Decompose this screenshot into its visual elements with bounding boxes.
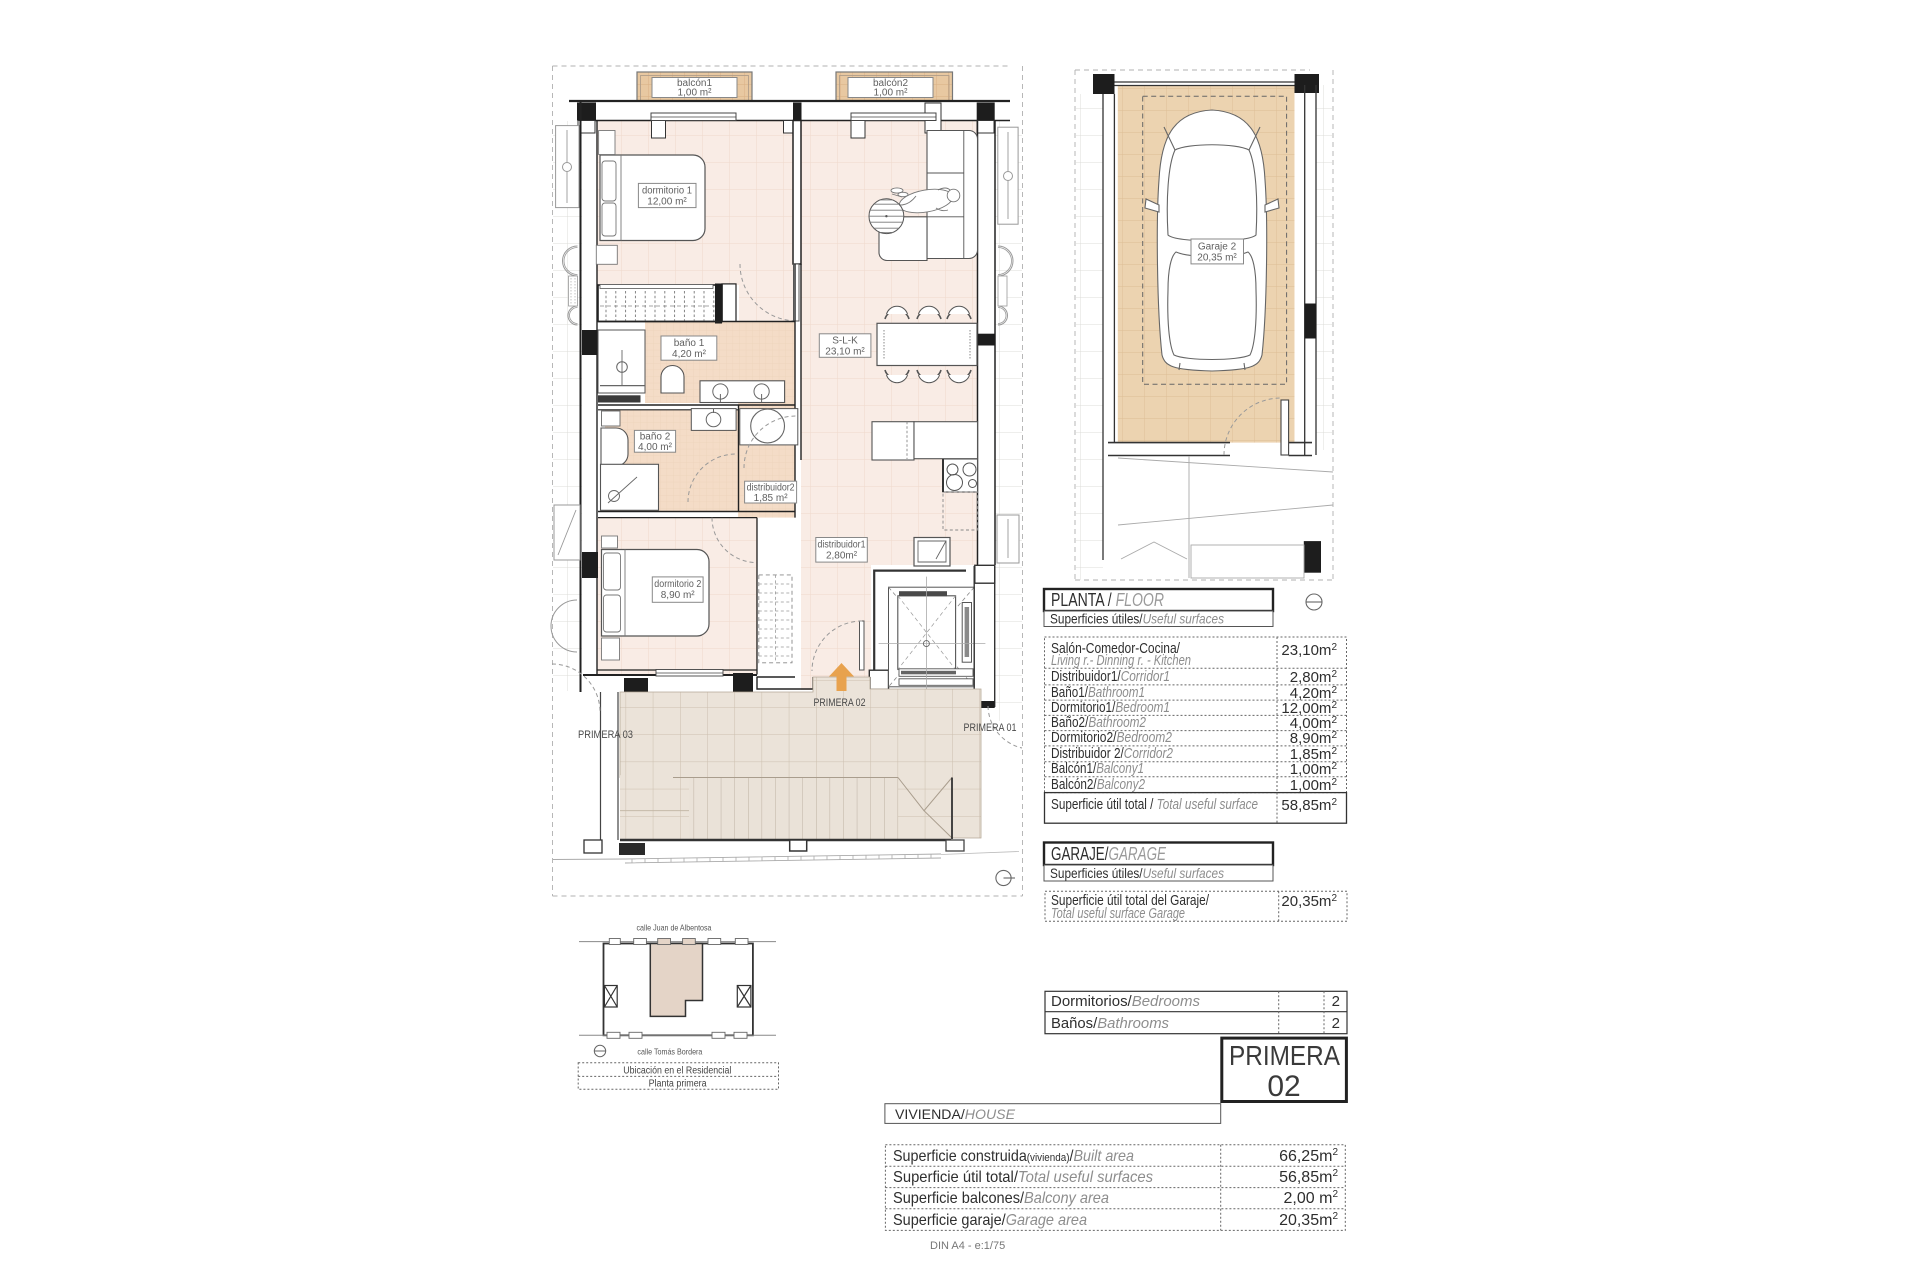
svg-text:Dormitorios/Bedrooms: Dormitorios/Bedrooms <box>1051 993 1200 1010</box>
svg-text:distribuidor2: distribuidor2 <box>747 483 795 494</box>
svg-text:PLANTA / FLOOR: PLANTA / FLOOR <box>1051 589 1164 610</box>
svg-text:Superficie útil total/Total us: Superficie útil total/Total useful surfa… <box>893 1169 1153 1186</box>
svg-text:Ubicación en el Residencial: Ubicación en el Residencial <box>623 1065 731 1076</box>
svg-text:Garaje 2: Garaje 2 <box>1198 242 1237 253</box>
svg-text:58,85m2: 58,85m2 <box>1281 797 1337 814</box>
svg-text:Distribuidor1/Corridor1: Distribuidor1/Corridor1 <box>1051 668 1170 685</box>
svg-text:calle Juan de Albentosa: calle Juan de Albentosa <box>637 923 712 933</box>
svg-text:66,25m2: 66,25m2 <box>1279 1147 1338 1165</box>
svg-text:1,00 m²: 1,00 m² <box>678 88 713 99</box>
svg-text:S-L-K: S-L-K <box>832 336 858 347</box>
svg-text:1,00m2: 1,00m2 <box>1290 777 1338 794</box>
svg-text:baño 2: baño 2 <box>640 432 671 443</box>
svg-text:2,80m²: 2,80m² <box>826 551 858 562</box>
svg-text:DIN A4 - e:1/75: DIN A4 - e:1/75 <box>930 1240 1005 1252</box>
svg-text:02: 02 <box>1267 1070 1300 1103</box>
svg-text:PRIMERA: PRIMERA <box>1229 1040 1340 1071</box>
svg-text:distribuidor1: distribuidor1 <box>818 540 866 551</box>
svg-text:23,10m2: 23,10m2 <box>1281 642 1337 659</box>
svg-text:Planta primera: Planta primera <box>649 1079 707 1090</box>
svg-text:Superficies útiles/Useful surf: Superficies útiles/Useful surfaces <box>1050 865 1224 881</box>
svg-text:baño 1: baño 1 <box>674 338 705 349</box>
svg-text:VIVIENDA/HOUSE: VIVIENDA/HOUSE <box>895 1106 1016 1122</box>
svg-text:Superficie útil total / Total: Superficie útil total / Total useful sur… <box>1051 796 1258 813</box>
svg-text:4,00 m²: 4,00 m² <box>638 442 673 453</box>
svg-text:Living r.- Dinning r. - Kitche: Living r.- Dinning r. - Kitchen <box>1051 652 1191 669</box>
svg-text:dormitorio 1: dormitorio 1 <box>642 186 692 197</box>
svg-text:PRIMERA 02: PRIMERA 02 <box>814 697 866 709</box>
svg-text:Superficie garaje/Garage area: Superficie garaje/Garage area <box>893 1212 1087 1229</box>
svg-text:8,90 m²: 8,90 m² <box>661 590 696 601</box>
svg-text:1,85 m²: 1,85 m² <box>754 493 789 504</box>
svg-text:2,00 m2: 2,00 m2 <box>1284 1189 1339 1207</box>
svg-text:2: 2 <box>1332 1015 1340 1032</box>
svg-text:Superficies útiles/Useful surf: Superficies útiles/Useful surfaces <box>1050 611 1224 627</box>
svg-text:12,00 m²: 12,00 m² <box>647 197 687 208</box>
svg-text:20,35 m²: 20,35 m² <box>1197 253 1237 264</box>
svg-text:PRIMERA 03: PRIMERA 03 <box>578 729 633 741</box>
svg-text:Superficie construida(vivienda: Superficie construida(vivienda)/Built ar… <box>893 1148 1134 1165</box>
svg-text:Dormitorio2/Bedroom2: Dormitorio2/Bedroom2 <box>1051 729 1173 746</box>
svg-text:PRIMERA 01: PRIMERA 01 <box>964 722 1017 734</box>
svg-text:Total useful surface Garage: Total useful surface Garage <box>1051 905 1185 922</box>
svg-text:calle Tomás Bordera: calle Tomás Bordera <box>637 1046 702 1056</box>
svg-text:2: 2 <box>1332 993 1340 1010</box>
svg-text:GARAJE/GARAGE: GARAJE/GARAGE <box>1051 843 1166 864</box>
svg-text:4,20 m²: 4,20 m² <box>672 349 707 360</box>
svg-text:2,80m2: 2,80m2 <box>1290 669 1338 686</box>
svg-text:Superficie balcones/Balcony ar: Superficie balcones/Balcony area <box>893 1190 1109 1207</box>
svg-text:1,00m2: 1,00m2 <box>1290 761 1338 778</box>
svg-text:20,35m2: 20,35m2 <box>1281 893 1337 910</box>
svg-text:dormitorio 2: dormitorio 2 <box>654 579 701 590</box>
svg-text:20,35m2: 20,35m2 <box>1279 1211 1338 1229</box>
svg-text:56,85m2: 56,85m2 <box>1279 1168 1338 1186</box>
svg-text:Balcón2/Balcony2: Balcón2/Balcony2 <box>1051 776 1146 793</box>
svg-text:23,10 m²: 23,10 m² <box>825 347 865 358</box>
svg-text:Balcón1/Balcony1: Balcón1/Balcony1 <box>1051 760 1144 777</box>
svg-text:8,90m2: 8,90m2 <box>1290 730 1338 747</box>
svg-text:Baños/Bathrooms: Baños/Bathrooms <box>1051 1015 1169 1032</box>
svg-text:1,00 m²: 1,00 m² <box>874 88 909 99</box>
